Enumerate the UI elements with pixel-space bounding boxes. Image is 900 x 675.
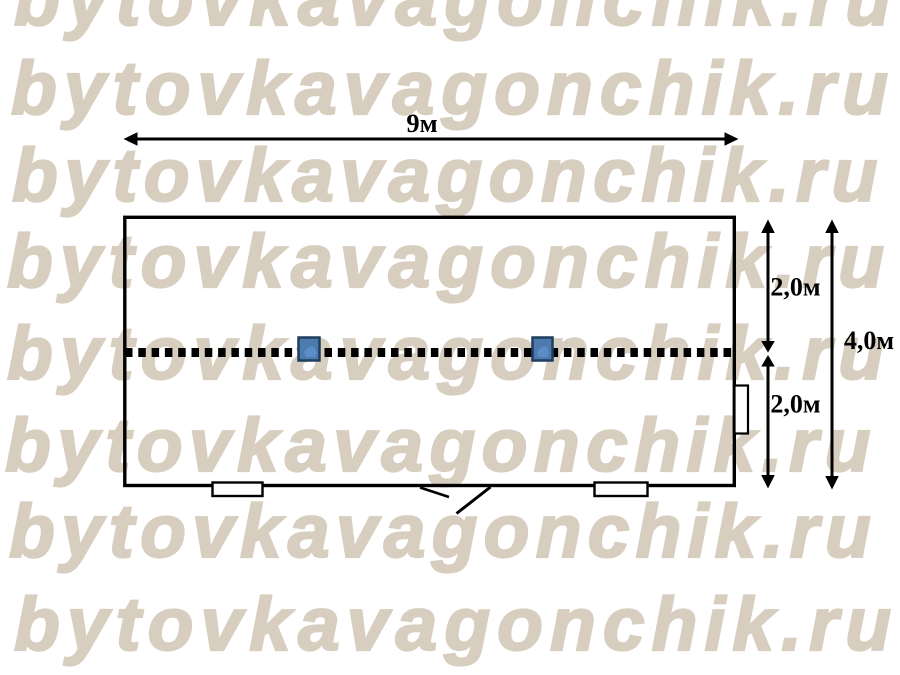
- svg-text:bytovkavagonchik.ru: bytovkavagonchik.ru: [14, 582, 898, 666]
- svg-text:bytovkavagonchik.ru: bytovkavagonchik.ru: [9, 489, 877, 573]
- svg-text:2,0м: 2,0м: [770, 273, 820, 302]
- svg-text:bytovkavagonchik.ru: bytovkavagonchik.ru: [7, 219, 891, 303]
- svg-text:bytovkavagonchik.ru: bytovkavagonchik.ru: [14, 0, 898, 41]
- svg-text:bytovkavagonchik.ru: bytovkavagonchik.ru: [11, 46, 895, 130]
- svg-text:4,0м: 4,0м: [844, 326, 894, 355]
- svg-text:2,0м: 2,0м: [770, 390, 820, 419]
- svg-text:bytovkavagonchik.ru: bytovkavagonchik.ru: [12, 133, 884, 217]
- svg-text:9м: 9м: [406, 108, 437, 138]
